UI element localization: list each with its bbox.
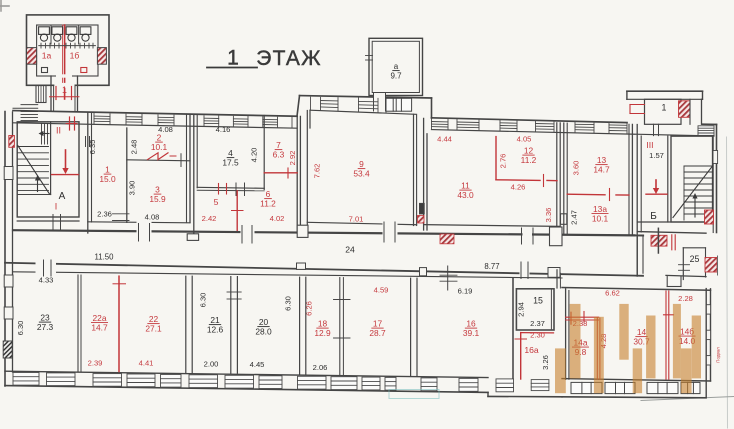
- svg-text:12.6: 12.6: [207, 325, 224, 335]
- svg-text:6.30: 6.30: [16, 321, 25, 336]
- svg-text:53.4: 53.4: [353, 169, 370, 179]
- svg-text:11.50: 11.50: [95, 253, 115, 262]
- svg-text:8.77: 8.77: [484, 262, 499, 271]
- svg-text:7: 7: [276, 140, 281, 150]
- svg-text:22а: 22а: [93, 313, 107, 323]
- svg-text:28.0: 28.0: [255, 327, 272, 337]
- svg-text:1: 1: [662, 103, 667, 113]
- svg-text:12: 12: [524, 146, 534, 156]
- svg-text:18: 18: [318, 319, 328, 329]
- svg-text:2.48: 2.48: [130, 140, 139, 155]
- svg-text:13: 13: [597, 155, 607, 165]
- svg-text:4.05: 4.05: [517, 135, 532, 144]
- svg-text:2.94: 2.94: [517, 302, 526, 317]
- svg-text:15.9: 15.9: [149, 194, 166, 204]
- svg-text:Б: Б: [650, 211, 657, 222]
- svg-text:11.2: 11.2: [260, 199, 276, 209]
- svg-text:9.7: 9.7: [390, 72, 402, 81]
- svg-text:3.36: 3.36: [544, 208, 553, 223]
- svg-text:27.1: 27.1: [145, 324, 162, 334]
- svg-text:4.33: 4.33: [39, 276, 54, 285]
- svg-text:6: 6: [266, 189, 271, 199]
- svg-text:1б: 1б: [70, 51, 80, 61]
- svg-text:6.30: 6.30: [199, 293, 208, 308]
- svg-text:Подвал: Подвал: [716, 347, 721, 363]
- svg-text:I: I: [55, 202, 58, 212]
- svg-text:4.16: 4.16: [216, 125, 231, 134]
- svg-text:6.35: 6.35: [88, 140, 97, 155]
- svg-text:3.26: 3.26: [541, 355, 550, 370]
- svg-text:2.76: 2.76: [499, 154, 508, 169]
- svg-text:2.30: 2.30: [530, 330, 545, 339]
- svg-text:9: 9: [359, 159, 364, 169]
- svg-text:А: А: [59, 191, 66, 202]
- svg-text:а: а: [394, 62, 399, 71]
- svg-text:6.3: 6.3: [273, 150, 285, 160]
- svg-text:43.0: 43.0: [457, 190, 474, 200]
- svg-text:ЭТАЖ: ЭТАЖ: [256, 47, 321, 70]
- svg-text:17.5: 17.5: [222, 158, 239, 168]
- svg-text:1.57: 1.57: [649, 151, 664, 160]
- svg-text:1: 1: [105, 165, 110, 175]
- svg-text:15.0: 15.0: [99, 174, 116, 184]
- svg-text:17: 17: [373, 319, 383, 329]
- svg-text:3.90: 3.90: [128, 181, 137, 196]
- svg-text:6.26: 6.26: [305, 301, 314, 316]
- svg-text:2.00: 2.00: [204, 360, 219, 369]
- svg-text:39.1: 39.1: [463, 328, 480, 338]
- svg-text:13а: 13а: [593, 204, 607, 214]
- svg-text:11.2: 11.2: [521, 155, 537, 165]
- svg-text:3.60: 3.60: [572, 161, 581, 176]
- svg-text:4.44: 4.44: [437, 135, 452, 144]
- svg-text:4.20: 4.20: [250, 148, 259, 163]
- svg-text:4.08: 4.08: [158, 125, 173, 134]
- svg-text:2.92: 2.92: [288, 151, 297, 166]
- svg-text:15: 15: [533, 296, 543, 306]
- svg-text:25: 25: [690, 254, 700, 264]
- svg-text:2.28: 2.28: [678, 294, 693, 303]
- svg-text:4.59: 4.59: [374, 286, 389, 295]
- svg-text:3: 3: [155, 185, 160, 195]
- svg-text:10.1: 10.1: [592, 214, 609, 224]
- svg-text:11: 11: [461, 181, 470, 191]
- svg-text:22: 22: [149, 314, 159, 324]
- svg-text:II: II: [56, 126, 61, 136]
- svg-text:2.36: 2.36: [97, 210, 112, 219]
- svg-text:2.42: 2.42: [202, 214, 217, 223]
- svg-text:2.06: 2.06: [313, 363, 328, 372]
- svg-text:20: 20: [259, 317, 269, 327]
- svg-text:2.47: 2.47: [570, 210, 579, 225]
- svg-text:1а: 1а: [42, 51, 52, 61]
- svg-text:10.1: 10.1: [151, 142, 168, 152]
- svg-text:2: 2: [157, 133, 162, 143]
- svg-text:1: 1: [227, 47, 239, 70]
- svg-text:14: 14: [637, 327, 647, 337]
- svg-text:4.45: 4.45: [250, 360, 265, 369]
- svg-text:16: 16: [466, 319, 476, 329]
- svg-text:1: 1: [62, 85, 67, 95]
- svg-text:5: 5: [214, 197, 219, 207]
- svg-text:4.08: 4.08: [145, 212, 160, 221]
- svg-text:6.62: 6.62: [605, 289, 620, 298]
- svg-text:4: 4: [228, 148, 233, 158]
- svg-text:14.7: 14.7: [593, 165, 610, 175]
- svg-text:24: 24: [345, 245, 355, 255]
- svg-text:16а: 16а: [524, 345, 539, 355]
- svg-text:6.19: 6.19: [458, 287, 473, 296]
- svg-text:4.02: 4.02: [270, 214, 285, 223]
- svg-text:4.41: 4.41: [139, 359, 154, 368]
- svg-text:21: 21: [210, 315, 220, 325]
- svg-text:2.39: 2.39: [88, 359, 103, 368]
- svg-text:14.7: 14.7: [91, 323, 108, 333]
- svg-text:27.3: 27.3: [37, 322, 54, 332]
- svg-text:12.9: 12.9: [314, 328, 331, 338]
- svg-text:23: 23: [40, 313, 50, 323]
- svg-text:7.01: 7.01: [349, 215, 364, 224]
- svg-text:7.62: 7.62: [313, 164, 322, 179]
- svg-text:28.7: 28.7: [369, 328, 386, 338]
- svg-text:2.37: 2.37: [530, 319, 545, 328]
- svg-text:6.30: 6.30: [284, 296, 293, 311]
- svg-text:4.26: 4.26: [511, 183, 526, 192]
- svg-text:III: III: [646, 140, 653, 150]
